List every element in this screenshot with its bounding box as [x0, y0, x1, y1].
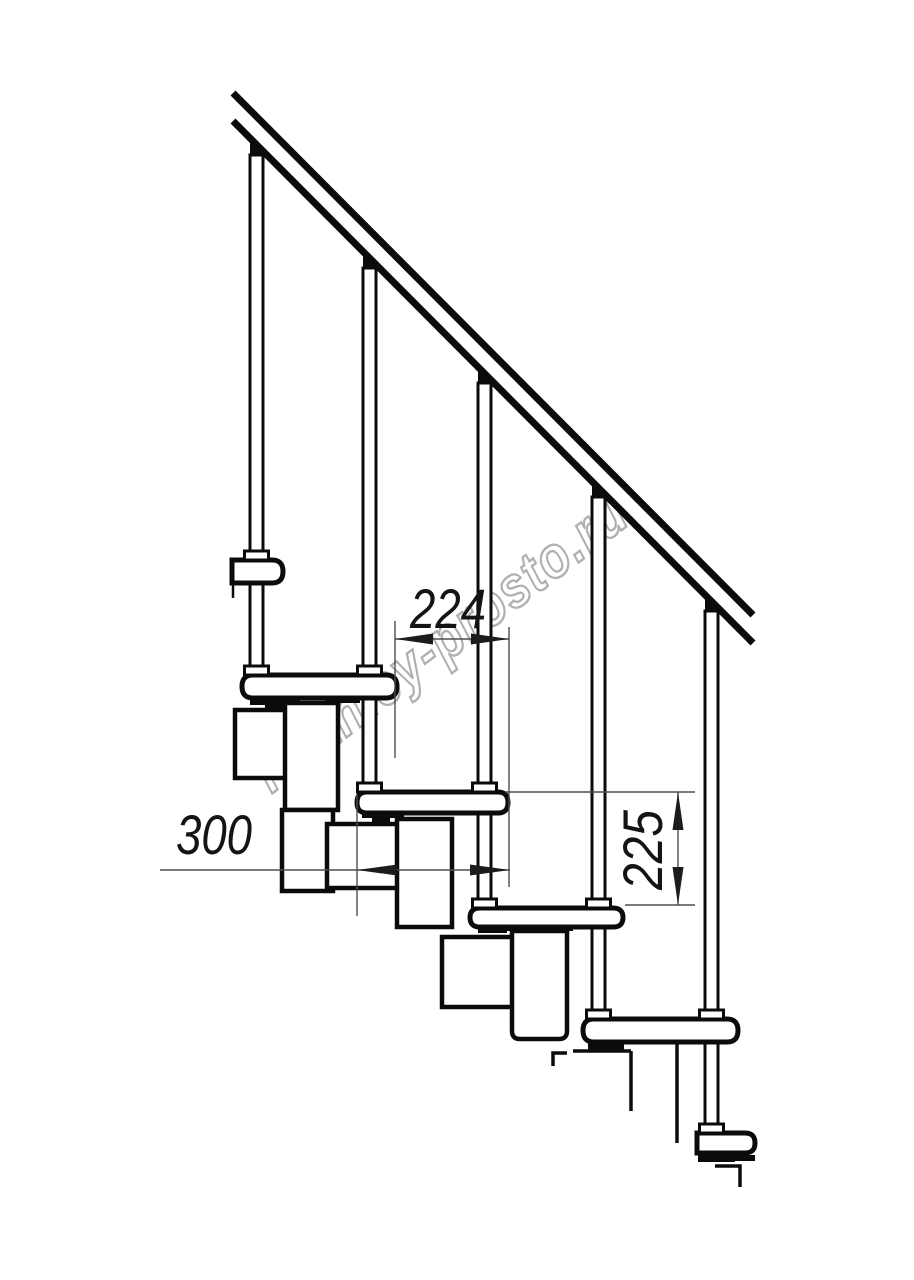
floor-step-line [715, 1166, 740, 1187]
baluster-collar [358, 783, 382, 792]
module-step-line [553, 1053, 567, 1066]
dimension-value-step-rise: 225 [611, 809, 674, 891]
staircase-drawing-page: lestnicy-prosto.ru [0, 0, 914, 1280]
wall-bracket [232, 560, 283, 583]
module-box [442, 937, 518, 1007]
baluster-collar [473, 783, 497, 792]
module-box [285, 703, 338, 810]
baluster-collar [358, 666, 382, 675]
handrail-top-edge [233, 93, 753, 615]
floor-bracket [697, 1133, 755, 1153]
dimension-value-tread-depth: 300 [176, 803, 252, 866]
baluster-collar [245, 551, 269, 560]
baluster-collar [587, 1010, 611, 1019]
baluster-collar [245, 666, 269, 675]
tread [470, 908, 623, 927]
module-box [397, 819, 452, 927]
staircase-side-view-drawing: lestnicy-prosto.ru [0, 0, 914, 1280]
baluster-collar [587, 899, 611, 908]
mount-plate [735, 1155, 755, 1161]
baluster-collar [473, 899, 497, 908]
arrowhead-down [673, 867, 684, 905]
baluster-collar [700, 1010, 724, 1019]
module-box [327, 824, 406, 888]
tread [583, 1019, 738, 1042]
baluster-post-4 [592, 497, 605, 1019]
baluster-post-2 [363, 268, 376, 792]
module-box [235, 710, 290, 778]
arrowhead-up [673, 792, 684, 830]
tread [242, 675, 397, 698]
handrail [233, 93, 753, 643]
tread [357, 792, 508, 813]
baluster-collar [700, 1124, 724, 1133]
baluster-post-3 [478, 383, 491, 908]
module-box [512, 931, 567, 1039]
dimension-value-step-run: 224 [409, 577, 486, 640]
baluster-post-1 [250, 155, 263, 675]
baluster-post-5 [705, 611, 718, 1133]
